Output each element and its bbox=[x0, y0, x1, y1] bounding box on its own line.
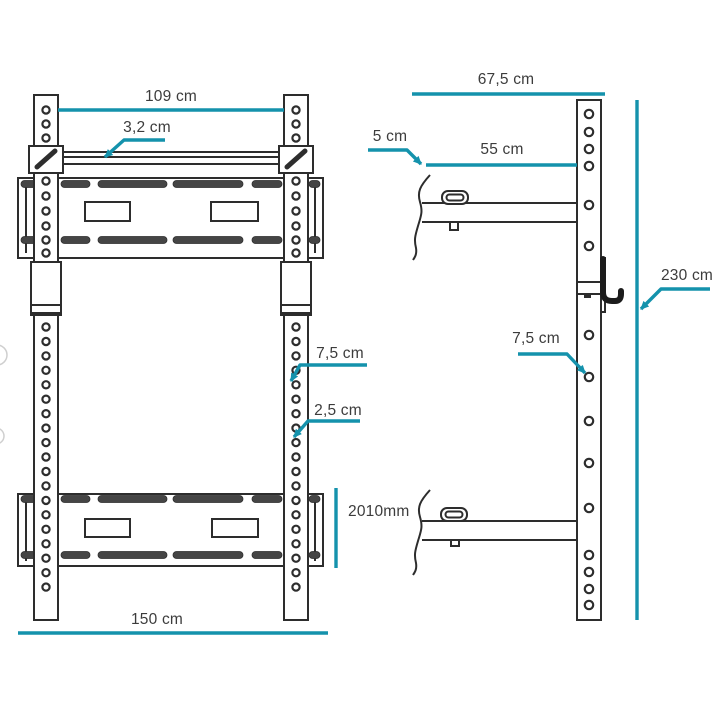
front-right-sleeve bbox=[281, 262, 311, 315]
front-left-sleeve bbox=[31, 262, 61, 315]
dim-label-side-top-depth: 67,5 cm bbox=[478, 71, 535, 89]
dim-label-front-hole-spacing: 7,5 cm bbox=[316, 345, 364, 363]
front-lower-panel bbox=[18, 494, 323, 566]
wall-break-line-lower bbox=[413, 490, 430, 575]
side-view-drawing bbox=[413, 100, 621, 620]
front-left-clamp bbox=[29, 146, 63, 173]
dim-label-front-hole-diameter: 2,5 cm bbox=[314, 402, 362, 420]
lower-arm-tab bbox=[451, 540, 459, 546]
front-right-clamp bbox=[279, 146, 313, 173]
side-upper-arm bbox=[413, 175, 577, 260]
dim-label-front-bar-thickness: 3,2 cm bbox=[123, 119, 171, 137]
upper-arm-tab bbox=[450, 222, 458, 230]
dim-label-front-panel-height: 2010mm bbox=[348, 503, 410, 521]
leader-230cm bbox=[641, 289, 710, 309]
front-lower-panel-slots bbox=[21, 496, 320, 559]
dim-label-side-wall-gap: 5 cm bbox=[373, 128, 407, 146]
side-lower-arm bbox=[413, 490, 577, 575]
wall-break-line-upper bbox=[413, 175, 430, 260]
dim-label-front-top-width: 109 cm bbox=[145, 88, 197, 106]
front-upper-panel-slots bbox=[21, 181, 320, 244]
front-upper-panel bbox=[18, 178, 323, 258]
watermark-arc bbox=[0, 345, 7, 444]
j-hook bbox=[603, 259, 621, 301]
leader-32cm bbox=[105, 140, 165, 157]
front-post-holes bbox=[42, 106, 299, 590]
technical-drawing-canvas: 109 cm 3,2 cm 7,5 cm 2,5 cm 2010mm 150 c… bbox=[0, 0, 720, 720]
leader-75cm-side bbox=[518, 354, 585, 373]
front-top-rail bbox=[58, 152, 284, 164]
front-view-drawing bbox=[18, 95, 323, 620]
leader-5cm bbox=[368, 150, 421, 164]
side-post bbox=[577, 100, 601, 620]
dim-label-front-base-width: 150 cm bbox=[131, 611, 183, 629]
dim-label-side-arm-length: 55 cm bbox=[480, 141, 523, 159]
dim-label-side-hole-spacing: 7,5 cm bbox=[512, 330, 560, 348]
dim-label-side-total-height: 230 cm bbox=[661, 267, 713, 285]
